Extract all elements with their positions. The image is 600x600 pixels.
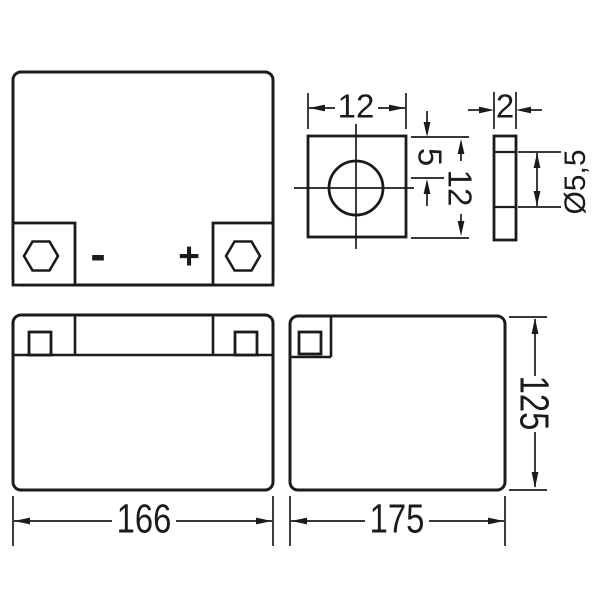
arrowhead-right-icon (389, 105, 405, 112)
arrowhead-right-icon (256, 518, 272, 525)
side-view-terminal (299, 332, 321, 354)
dim-terminal-height: 12 (444, 170, 477, 207)
arrowhead-left-icon (14, 518, 30, 525)
arrowhead-down-icon (534, 191, 541, 206)
drawing-canvas: - + 12 5 12 2 Ø5,5 166 175 125 (0, 0, 600, 600)
arrowhead-up-icon (534, 153, 541, 168)
dim-side-height: 125 (514, 376, 555, 431)
positive-terminal-sign: + (178, 238, 200, 275)
front-left-terminal (29, 332, 51, 355)
front-right-terminal (235, 332, 257, 355)
arrowhead-down-icon (532, 472, 539, 488)
arrowhead-up-icon (532, 318, 539, 334)
dim-terminal-hole-offset: 5 (414, 148, 447, 166)
arrowhead-up-icon (458, 139, 465, 154)
negative-terminal-sign: - (90, 231, 105, 277)
dim-terminal-hole-diameter: Ø5,5 (561, 149, 591, 214)
arrowhead-left-icon (291, 518, 307, 525)
positive-terminal-block (213, 223, 273, 285)
battery-top-view (13, 72, 273, 285)
arrowhead-down-icon (424, 122, 431, 137)
terminal-side-detail (468, 92, 561, 240)
dim-terminal-width: 12 (338, 90, 375, 123)
terminal-plate-outline (308, 136, 406, 237)
dim-terminal-thickness: 2 (496, 90, 514, 123)
arrowhead-up-icon (424, 179, 431, 194)
arrowhead-down-icon (458, 221, 465, 236)
negative-terminal-block (13, 223, 75, 285)
dim-front-width: 166 (117, 499, 172, 540)
arrowhead-left-icon (516, 107, 531, 114)
dim-side-depth: 175 (370, 499, 425, 540)
arrowhead-left-icon (309, 105, 325, 112)
arrowhead-right-icon (479, 107, 494, 114)
arrowhead-right-icon (488, 518, 504, 525)
